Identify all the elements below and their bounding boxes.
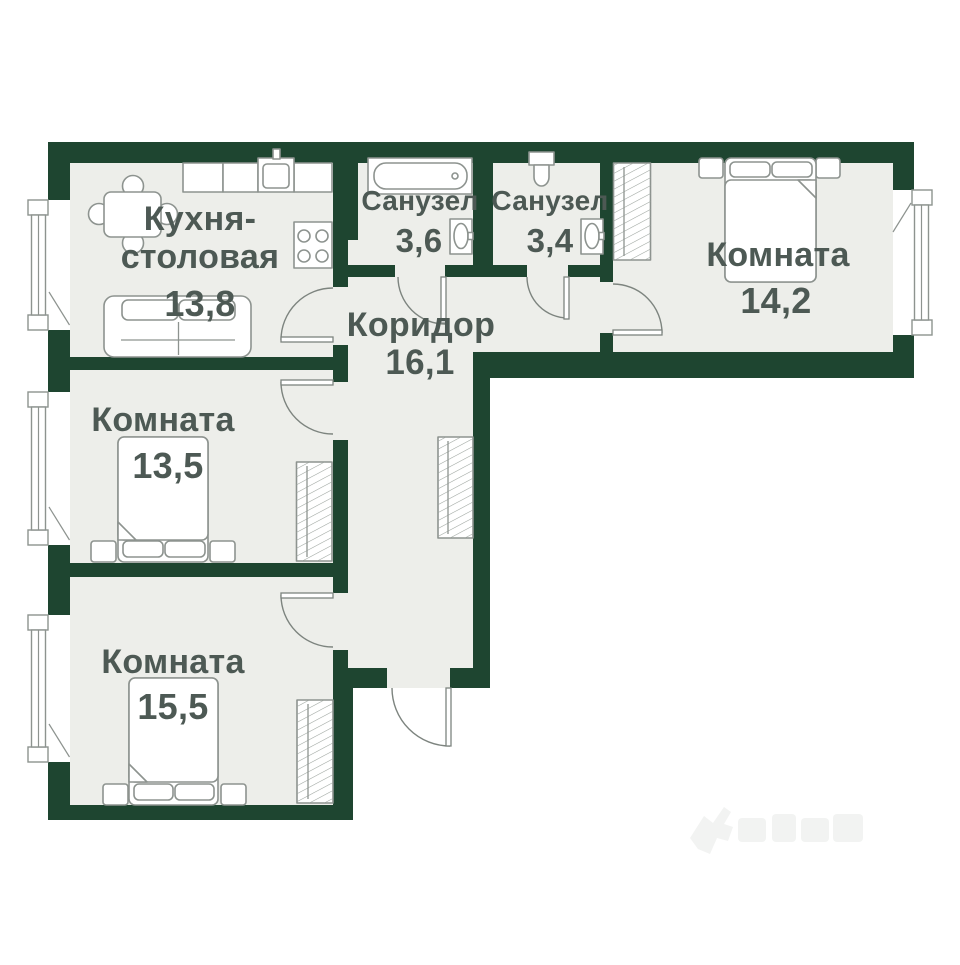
wardrobe-icon: [297, 700, 333, 803]
bathroom-1-label: Санузел: [361, 185, 478, 216]
bedroom-bottom-area: 15,5: [137, 686, 208, 727]
floor-plan-page: Кухня- столовая 13,8 Санузел 3,6 Санузел…: [0, 0, 960, 960]
watermark-logo: [690, 807, 863, 854]
kitchen-label-line1: Кухня-: [144, 200, 256, 238]
bathroom-2-area: 3,4: [527, 222, 574, 259]
entrance-door: [392, 688, 451, 746]
bedroom-middle-area: 13,5: [132, 445, 203, 486]
bedroom-middle-label: Комната: [91, 401, 235, 439]
washbasin-icon: [581, 219, 604, 254]
kitchen-area: 13,8: [164, 283, 235, 324]
kitchen-label-line2: столовая: [121, 238, 280, 276]
window-bedroom-middle: [28, 392, 70, 545]
corridor-furniture: [438, 437, 473, 538]
washbasin-icon: [450, 219, 473, 254]
wardrobe-icon: [297, 462, 333, 561]
corridor-label: Коридор: [347, 306, 495, 344]
floor-plan: Кухня- столовая 13,8 Санузел 3,6 Санузел…: [0, 0, 960, 960]
window-bedroom-right: [893, 190, 932, 335]
wardrobe-icon: [614, 163, 651, 260]
wardrobe-icon: [438, 437, 473, 538]
stove-icon: [294, 222, 332, 268]
bathroom-1-area: 3,6: [396, 222, 443, 259]
bedroom-right-label: Комната: [706, 236, 850, 274]
bedroom-bottom-label: Комната: [101, 643, 245, 681]
window-kitchen: [28, 200, 70, 330]
corridor-area: 16,1: [385, 343, 454, 382]
window-bedroom-bottom: [28, 615, 70, 762]
bathroom-2-label: Санузел: [491, 185, 608, 216]
bedroom-right-area: 14,2: [740, 280, 811, 321]
